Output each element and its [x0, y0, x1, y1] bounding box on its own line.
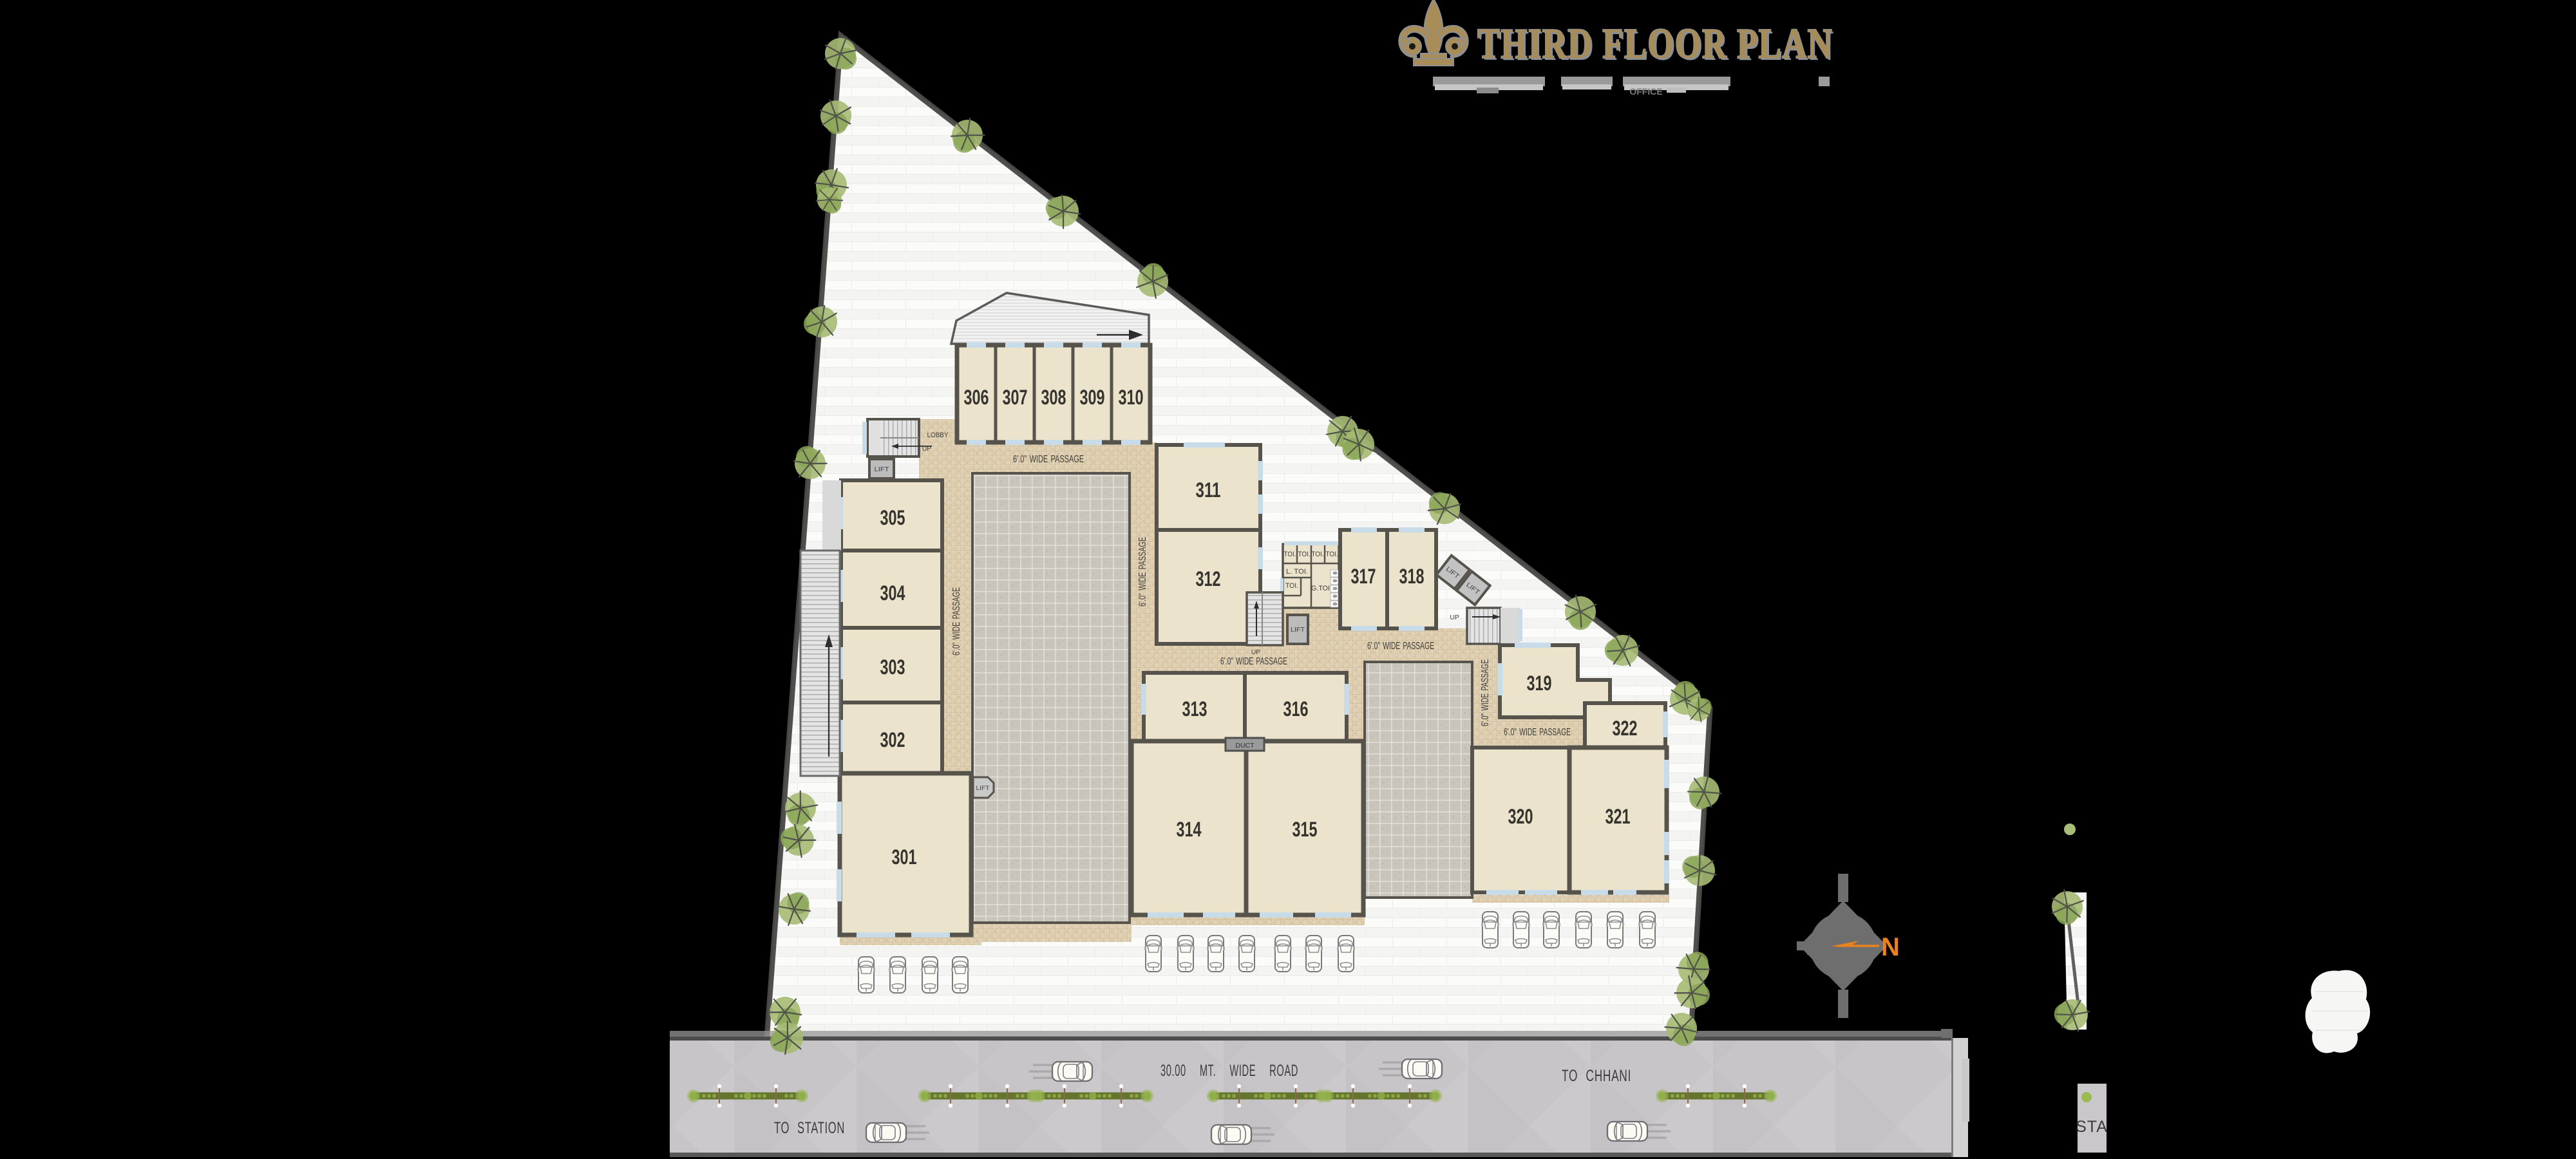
svg-text:318: 318	[1399, 565, 1425, 588]
svg-text:TOI.: TOI.	[1298, 551, 1311, 558]
svg-text:315: 315	[1293, 818, 1318, 841]
svg-text:STA: STA	[2076, 1118, 2108, 1136]
svg-text:UP: UP	[1251, 648, 1261, 656]
svg-text:6'.0" WIDE PASSAGE: 6'.0" WIDE PASSAGE	[1367, 641, 1434, 652]
svg-text:314: 314	[1177, 818, 1202, 841]
svg-text:317: 317	[1351, 565, 1376, 588]
svg-text:UP: UP	[922, 445, 932, 453]
svg-text:6'.0" WIDE PASSAGE: 6'.0" WIDE PASSAGE	[951, 587, 962, 655]
svg-text:310: 310	[1119, 386, 1144, 409]
svg-text:TOI.: TOI.	[1312, 551, 1324, 558]
svg-text:TOI.: TOI.	[1326, 551, 1338, 558]
svg-text:LOBBY: LOBBY	[927, 431, 949, 439]
svg-text:6'.0" WIDE PASSAGE: 6'.0" WIDE PASSAGE	[1504, 727, 1571, 738]
svg-text:320: 320	[1508, 805, 1533, 828]
svg-text:6'.0" WIDE PASSAGE: 6'.0" WIDE PASSAGE	[1220, 656, 1287, 667]
svg-text:312: 312	[1196, 567, 1221, 590]
svg-text:309: 309	[1080, 386, 1105, 409]
svg-text:305: 305	[880, 506, 905, 529]
svg-text:TO CHHANI: TO CHHANI	[1562, 1067, 1631, 1085]
svg-text:30.00 MT. WIDE ROAD: 30.00 MT. WIDE ROAD	[1160, 1062, 1298, 1080]
svg-text:319: 319	[1527, 672, 1552, 695]
svg-text:6'.0" WIDE PASSAGE: 6'.0" WIDE PASSAGE	[1137, 537, 1148, 607]
svg-text:LIFT: LIFT	[875, 466, 889, 473]
svg-text:316: 316	[1283, 697, 1309, 721]
svg-text:306: 306	[964, 386, 989, 409]
svg-text:313: 313	[1182, 697, 1207, 721]
svg-text:LIFT: LIFT	[976, 785, 990, 792]
svg-text:N: N	[1881, 933, 1900, 961]
svg-text:LIFT: LIFT	[1291, 627, 1305, 634]
svg-text:G.TOI.: G.TOI.	[1311, 585, 1332, 592]
svg-text:TO STATION: TO STATION	[774, 1119, 845, 1137]
svg-text:OFFICE: OFFICE	[1629, 86, 1662, 97]
svg-text:321: 321	[1605, 805, 1631, 828]
svg-text:6'.0" WIDE PASSAGE: 6'.0" WIDE PASSAGE	[1480, 659, 1491, 726]
svg-text:UP: UP	[1450, 614, 1459, 621]
svg-text:302: 302	[880, 728, 905, 751]
svg-text:311: 311	[1196, 478, 1221, 502]
svg-text:322: 322	[1613, 717, 1638, 740]
svg-text:DUCT: DUCT	[1235, 742, 1255, 749]
svg-text:TOI.: TOI.	[1284, 551, 1296, 558]
svg-text:303: 303	[880, 655, 905, 679]
svg-text:L. TOI.: L. TOI.	[1286, 568, 1308, 576]
svg-text:307: 307	[1003, 386, 1028, 409]
svg-text:6'.0" WIDE PASSAGE: 6'.0" WIDE PASSAGE	[1013, 454, 1084, 465]
svg-text:308: 308	[1041, 386, 1066, 409]
svg-text:TOI.: TOI.	[1285, 582, 1298, 590]
svg-text:304: 304	[880, 581, 905, 605]
svg-text:301: 301	[892, 845, 917, 869]
svg-text:THIRD FLOOR PLAN: THIRD FLOOR PLAN	[1477, 20, 1833, 68]
